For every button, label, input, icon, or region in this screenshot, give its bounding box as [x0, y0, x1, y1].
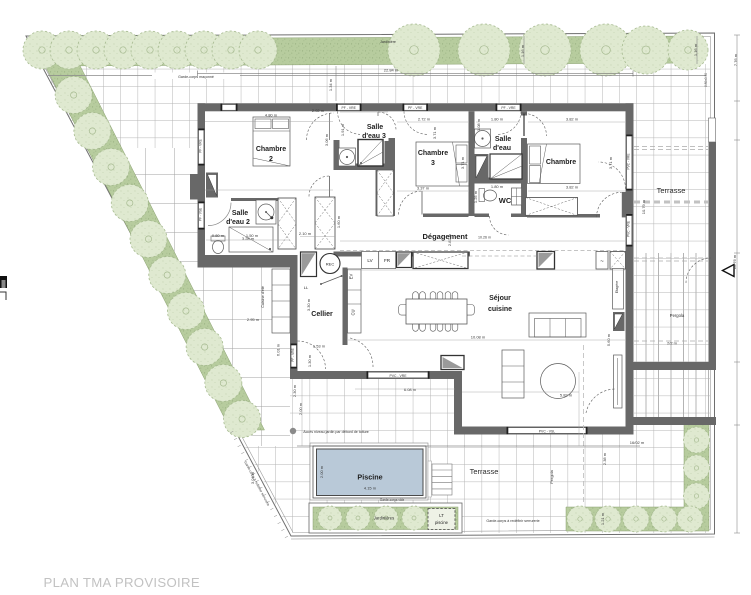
- svg-text:2.82 m: 2.82 m: [447, 233, 452, 246]
- svg-text:6.01 m: 6.01 m: [276, 343, 281, 356]
- svg-text:Séjour: Séjour: [489, 295, 511, 302]
- svg-text:~: ~: [600, 259, 604, 265]
- svg-text:Accès niveau jardin par débord: Accès niveau jardin par débord de toitur…: [303, 430, 369, 434]
- svg-text:3.71 m: 3.71 m: [432, 126, 437, 139]
- svg-text:1.53 m: 1.53 m: [313, 344, 326, 349]
- svg-text:d'eau 3: d'eau 3: [362, 133, 386, 140]
- svg-text:0.80 m: 0.80 m: [212, 233, 225, 238]
- svg-text:Terrasse: Terrasse: [657, 186, 686, 195]
- svg-text:1.08 m: 1.08 m: [476, 118, 481, 131]
- svg-text:REC: REC: [326, 261, 335, 266]
- svg-text:1.25 m: 1.25 m: [473, 190, 478, 203]
- svg-text:1.34 m: 1.34 m: [328, 78, 333, 91]
- svg-text:cuisine: cuisine: [488, 306, 512, 313]
- svg-text:3.37 m: 3.37 m: [417, 186, 430, 191]
- svg-text:10.26 m: 10.26 m: [478, 236, 491, 240]
- svg-text:WC: WC: [499, 196, 512, 205]
- svg-text:PLAN TMA PROVISOIRE: PLAN TMA PROVISOIRE: [44, 575, 200, 590]
- svg-text:PVC - VRE: PVC - VRE: [390, 374, 408, 378]
- svg-text:Jardinière: Jardinière: [380, 40, 396, 44]
- svg-text:FR: FR: [384, 258, 391, 263]
- svg-text:d'eau: d'eau: [493, 145, 511, 152]
- svg-text:0.80x0.30: 0.80x0.30: [704, 73, 708, 87]
- svg-text:Dégagement: Dégagement: [422, 232, 468, 241]
- svg-text:2.10 m: 2.10 m: [299, 231, 312, 236]
- svg-text:PF - VRE: PF - VRE: [291, 348, 295, 361]
- svg-text:3.82 m: 3.82 m: [566, 185, 579, 190]
- svg-text:d'eau 2: d'eau 2: [226, 219, 250, 226]
- svg-text:Terrasse: Terrasse: [470, 467, 499, 476]
- svg-text:Salle: Salle: [495, 136, 511, 143]
- svg-text:2.02 m: 2.02 m: [312, 108, 325, 113]
- svg-text:Pergola: Pergola: [670, 313, 685, 318]
- svg-text:1.21 m: 1.21 m: [600, 512, 605, 525]
- svg-text:EV: EV: [349, 274, 354, 280]
- svg-text:10.08 m: 10.08 m: [471, 335, 486, 340]
- svg-text:3: 3: [431, 160, 435, 167]
- svg-text:LT: LT: [439, 513, 444, 518]
- svg-text:1.80 m: 1.80 m: [491, 117, 504, 122]
- svg-text:2.72 m: 2.72 m: [418, 117, 431, 122]
- svg-text:Cellier: Cellier: [311, 311, 333, 318]
- svg-text:16.76 m: 16.76 m: [732, 254, 737, 269]
- svg-text:2.00 m: 2.00 m: [298, 402, 303, 415]
- svg-text:piscine: piscine: [435, 520, 449, 525]
- svg-text:Etagère: Etagère: [615, 281, 619, 294]
- svg-text:5.60 m: 5.60 m: [606, 333, 611, 346]
- svg-text:PF - VRE: PF - VRE: [199, 139, 203, 152]
- svg-text:PVC - VSL: PVC - VSL: [539, 429, 556, 433]
- svg-text:16/02 m: 16/02 m: [630, 440, 645, 445]
- svg-text:Piscine: Piscine: [357, 473, 382, 482]
- svg-text:LL: LL: [304, 285, 309, 290]
- svg-text:3.71 m: 3.71 m: [460, 156, 465, 169]
- svg-text:1.80 m: 1.80 m: [491, 184, 504, 189]
- svg-text:2/2 m: 2/2 m: [667, 341, 678, 346]
- svg-text:3.06 m: 3.06 m: [324, 133, 329, 146]
- svg-text:5.82 m: 5.82 m: [560, 393, 573, 398]
- svg-text:Chambre: Chambre: [546, 159, 576, 166]
- svg-text:PVC - VRE: PVC - VRE: [627, 154, 631, 170]
- svg-text:Jardinières: Jardinières: [374, 516, 394, 521]
- svg-text:Garde-corps vide: Garde-corps vide: [380, 498, 405, 502]
- svg-text:Chambre: Chambre: [418, 150, 448, 157]
- svg-text:6.08 m: 6.08 m: [404, 387, 417, 392]
- svg-text:3.30 m: 3.30 m: [306, 298, 311, 311]
- svg-text:PF - VRE: PF - VRE: [408, 106, 423, 110]
- svg-text:10.79 m: 10.79 m: [641, 199, 646, 214]
- svg-text:PF - VSE: PF - VSE: [199, 208, 203, 221]
- svg-text:Cuisine d'été: Cuisine d'été: [261, 286, 265, 308]
- svg-text:CU: CU: [351, 309, 356, 315]
- svg-text:1.30 m: 1.30 m: [307, 354, 312, 367]
- svg-text:3.04 m: 3.04 m: [250, 471, 255, 484]
- svg-text:Salle: Salle: [232, 210, 248, 217]
- svg-text:Garde-corps à redéfinir serrur: Garde-corps à redéfinir serrurerie: [486, 519, 539, 523]
- svg-text:PF - VRE: PF - VRE: [342, 106, 357, 110]
- svg-text:4.80 m: 4.80 m: [265, 113, 278, 118]
- svg-text:3.82 m: 3.82 m: [566, 117, 579, 122]
- svg-text:2.38 m: 2.38 m: [602, 452, 607, 465]
- svg-text:PF - VRE: PF - VRE: [501, 106, 516, 110]
- svg-text:3.71 m: 3.71 m: [608, 156, 613, 169]
- svg-text:2.00 m: 2.00 m: [319, 465, 324, 478]
- svg-text:1.91 m: 1.91 m: [340, 123, 345, 136]
- svg-text:Pergola: Pergola: [549, 469, 554, 484]
- svg-text:PVC - VRE: PVC - VRE: [627, 221, 631, 237]
- svg-text:22.84 m: 22.84 m: [384, 68, 399, 73]
- svg-text:2: 2: [269, 156, 273, 163]
- svg-text:4.15 m: 4.15 m: [364, 486, 377, 491]
- svg-text:Chambre: Chambre: [256, 146, 286, 153]
- svg-text:3.28 m: 3.28 m: [242, 236, 255, 241]
- svg-text:1.60 m: 1.60 m: [336, 215, 341, 228]
- svg-text:2.30 m: 2.30 m: [292, 384, 297, 397]
- svg-text:Garde-corps maçonné: Garde-corps maçonné: [178, 75, 214, 79]
- svg-text:Salle: Salle: [367, 124, 383, 131]
- svg-text:2.95 m: 2.95 m: [247, 317, 260, 322]
